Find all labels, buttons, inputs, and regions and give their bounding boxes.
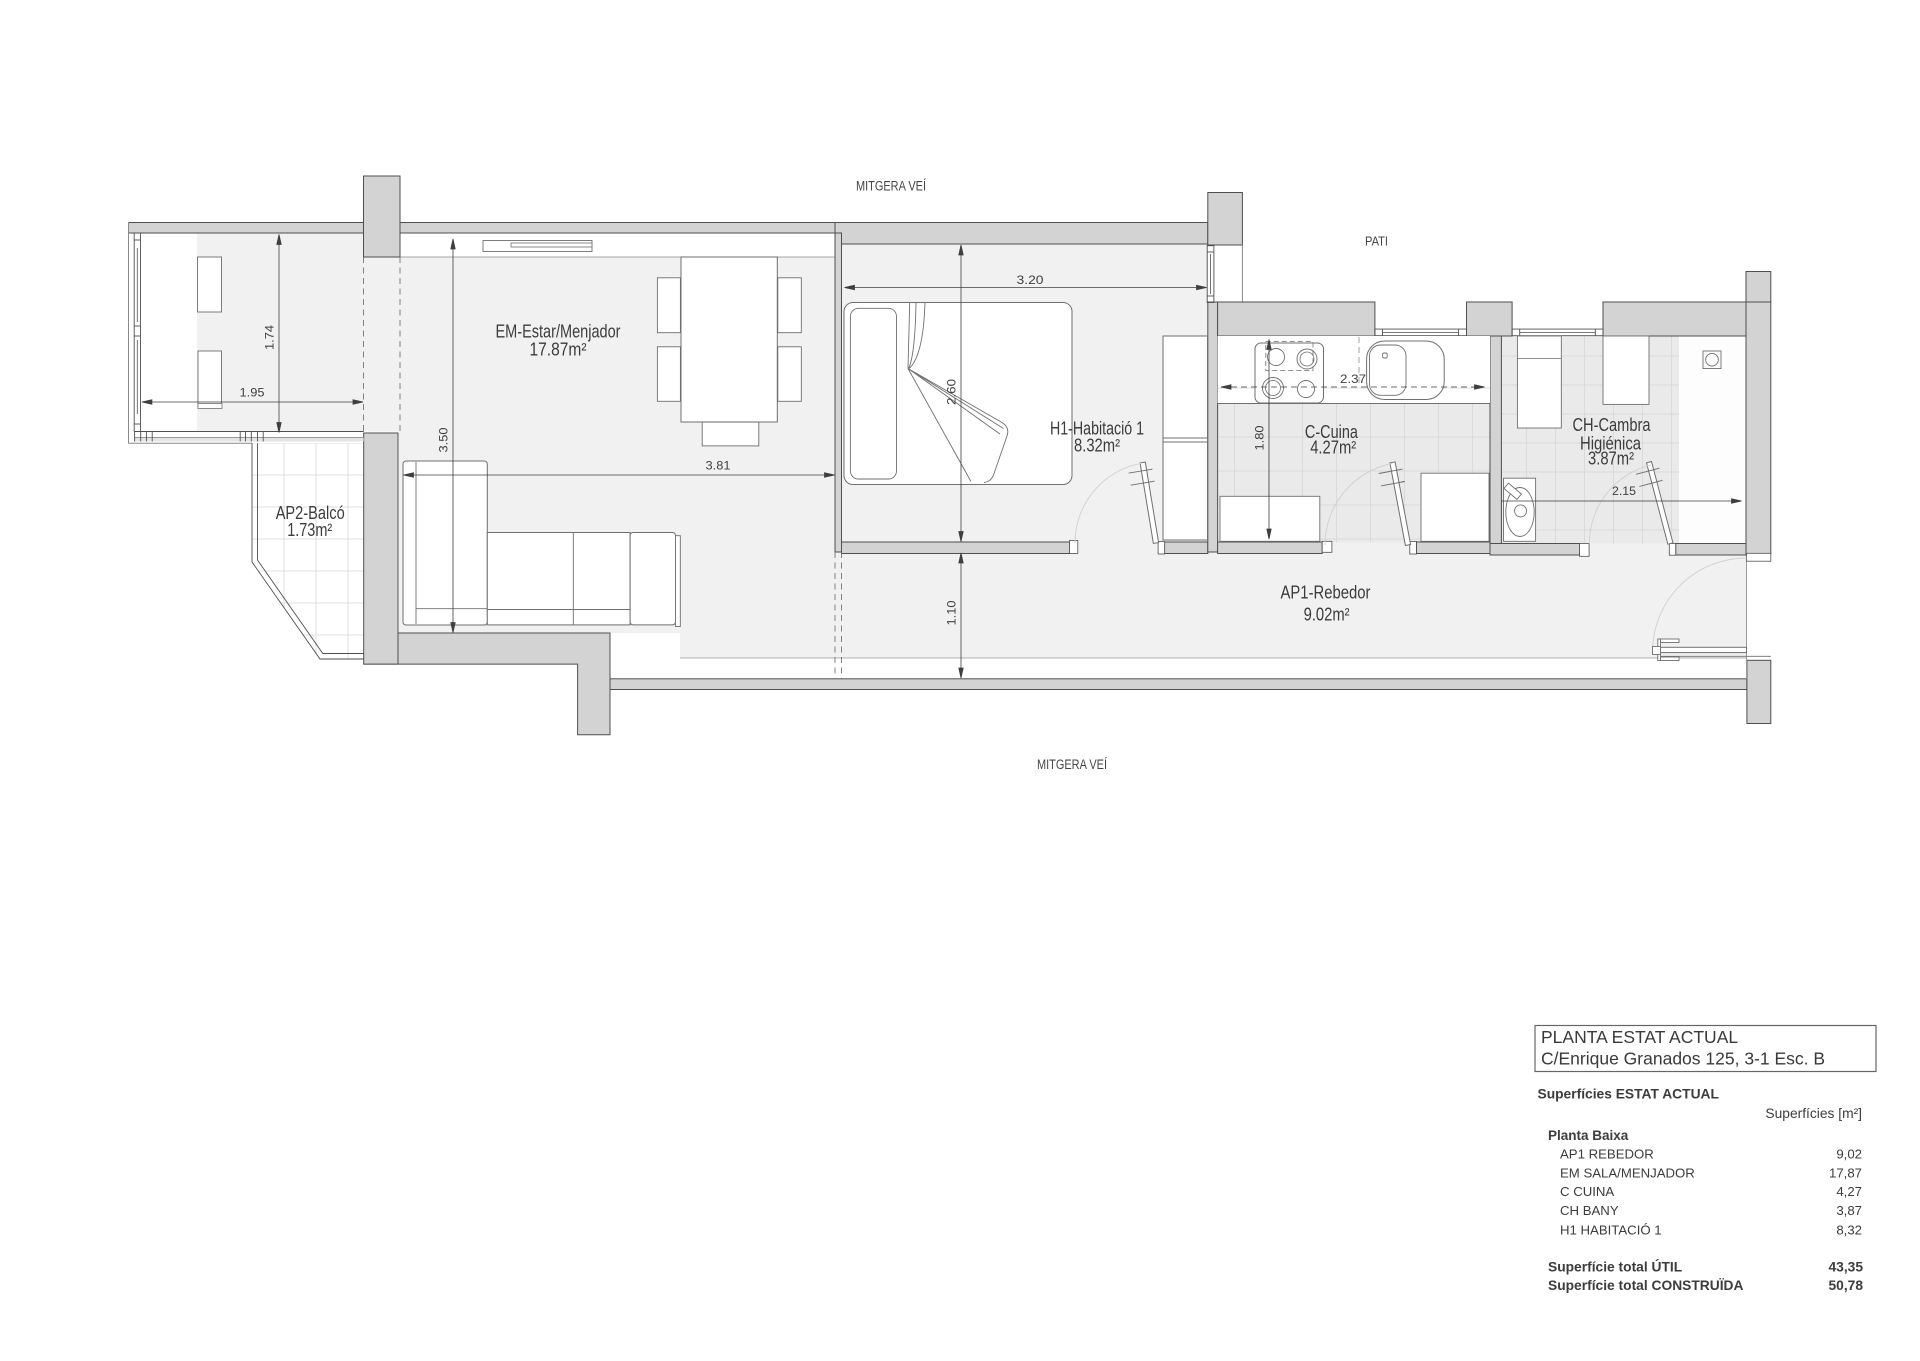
- svg-text:4.27m²: 4.27m²: [1310, 438, 1356, 458]
- svg-text:2.60: 2.60: [945, 379, 959, 405]
- svg-text:Superfície total CONSTRUÏDA: Superfície total CONSTRUÏDA: [1548, 1277, 1744, 1293]
- svg-text:43,35: 43,35: [1828, 1260, 1863, 1275]
- svg-text:4,27: 4,27: [1836, 1184, 1862, 1199]
- svg-text:17,87: 17,87: [1829, 1166, 1862, 1181]
- svg-text:3,87: 3,87: [1836, 1203, 1862, 1218]
- svg-text:9.02m²: 9.02m²: [1304, 604, 1350, 624]
- svg-text:3.50: 3.50: [437, 427, 451, 452]
- svg-text:H1 HABITACIÓ 1: H1 HABITACIÓ 1: [1560, 1223, 1662, 1238]
- svg-text:CH-Cambra: CH-Cambra: [1573, 415, 1652, 435]
- svg-text:3.20: 3.20: [1017, 273, 1044, 287]
- svg-text:2.37: 2.37: [1340, 372, 1366, 386]
- svg-text:1.10: 1.10: [945, 600, 959, 625]
- svg-text:1.73m²: 1.73m²: [287, 520, 332, 540]
- svg-text:50,78: 50,78: [1828, 1278, 1863, 1293]
- svg-text:2.15: 2.15: [1612, 484, 1636, 498]
- svg-text:CH BANY: CH BANY: [1560, 1203, 1619, 1218]
- svg-text:PLANTA ESTAT ACTUAL: PLANTA ESTAT ACTUAL: [1541, 1027, 1738, 1047]
- svg-text:PATI: PATI: [1365, 234, 1388, 249]
- svg-text:1.80: 1.80: [1253, 425, 1267, 450]
- svg-text:Planta Baixa: Planta Baixa: [1548, 1128, 1629, 1143]
- svg-text:AP1-Rebedor: AP1-Rebedor: [1281, 583, 1371, 603]
- svg-text:3.87m²: 3.87m²: [1588, 448, 1634, 468]
- svg-text:C/Enrique Granados 125, 3-1 Es: C/Enrique Granados 125, 3-1 Esc. B: [1541, 1049, 1825, 1069]
- svg-text:1.95: 1.95: [240, 386, 265, 400]
- svg-text:EM-Estar/Menjador: EM-Estar/Menjador: [496, 322, 621, 342]
- svg-text:EM SALA/MENJADOR: EM SALA/MENJADOR: [1560, 1166, 1695, 1181]
- svg-text:C CUINA: C CUINA: [1560, 1184, 1614, 1199]
- svg-text:9,02: 9,02: [1836, 1147, 1862, 1162]
- svg-text:17.87m²: 17.87m²: [530, 340, 587, 360]
- svg-text:MITGERA VEÍ: MITGERA VEÍ: [1037, 757, 1107, 772]
- svg-text:8.32m²: 8.32m²: [1074, 436, 1120, 456]
- svg-text:AP1 REBEDOR: AP1 REBEDOR: [1560, 1147, 1654, 1162]
- svg-text:1.74: 1.74: [263, 325, 277, 350]
- svg-text:MITGERA VEÍ: MITGERA VEÍ: [856, 179, 926, 194]
- svg-text:3.81: 3.81: [706, 459, 731, 473]
- svg-text:8,32: 8,32: [1836, 1223, 1862, 1238]
- svg-text:Superfícies [m²]: Superfícies [m²]: [1765, 1106, 1862, 1121]
- svg-text:Superfícies ESTAT ACTUAL: Superfícies ESTAT ACTUAL: [1538, 1087, 1719, 1102]
- svg-text:Superfície total ÚTIL: Superfície total ÚTIL: [1548, 1258, 1682, 1275]
